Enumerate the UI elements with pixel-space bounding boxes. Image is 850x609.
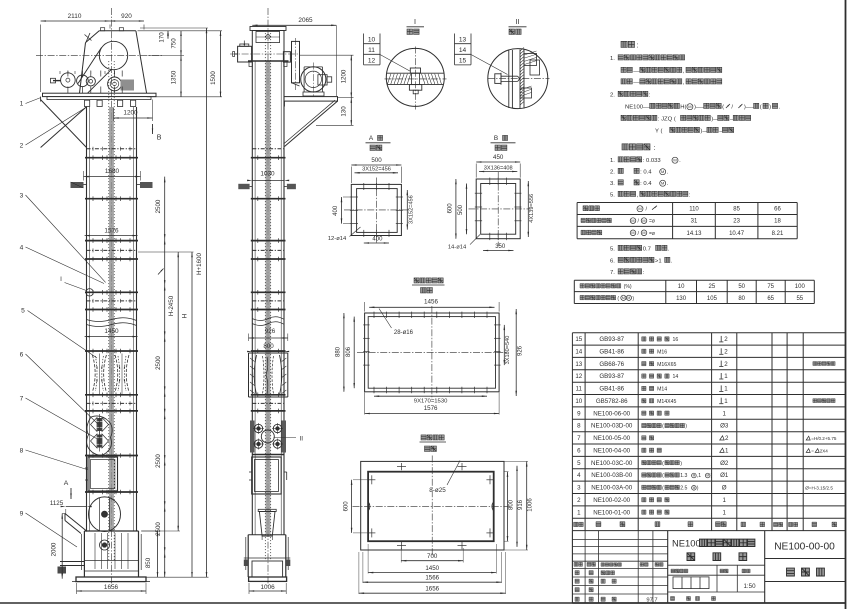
svg-text:105: 105 xyxy=(707,296,718,302)
svg-text:GB93-87: GB93-87 xyxy=(599,373,624,380)
svg-text:4: 4 xyxy=(20,245,24,252)
svg-text:1450: 1450 xyxy=(104,328,119,335)
svg-text:25: 25 xyxy=(709,284,716,290)
svg-text:GB68-76: GB68-76 xyxy=(599,361,624,368)
svg-text:2: 2 xyxy=(577,497,581,504)
svg-text:170: 170 xyxy=(158,32,165,43)
svg-text:(: ( xyxy=(662,424,664,430)
svg-text:66: 66 xyxy=(774,207,781,213)
svg-text:NE100-01-00: NE100-01-00 xyxy=(593,509,630,516)
svg-text:500: 500 xyxy=(371,157,382,164)
svg-text:700: 700 xyxy=(427,553,438,560)
svg-text:1: 1 xyxy=(724,373,728,380)
svg-text:): ) xyxy=(711,473,713,479)
svg-text:2500: 2500 xyxy=(155,356,162,370)
svg-text:2X4: 2X4 xyxy=(820,448,829,453)
svg-text:3X180=540: 3X180=540 xyxy=(505,336,511,365)
svg-text:10: 10 xyxy=(575,398,582,405)
svg-text:2: 2 xyxy=(725,435,729,442)
svg-text:): ) xyxy=(680,461,682,467)
svg-text:6: 6 xyxy=(20,352,24,359)
svg-text:9X170=1530: 9X170=1530 xyxy=(414,399,448,405)
svg-text:1350: 1350 xyxy=(171,70,178,84)
svg-text:=ø: =ø xyxy=(649,231,655,237)
svg-text:18: 18 xyxy=(774,219,781,225)
svg-text:2: 2 xyxy=(20,143,24,150)
svg-text:916: 916 xyxy=(518,499,524,510)
svg-text:I: I xyxy=(60,276,62,283)
svg-text:GB5782-86: GB5782-86 xyxy=(596,398,628,405)
svg-text:3X152=456: 3X152=456 xyxy=(409,195,415,224)
svg-text:500: 500 xyxy=(458,204,464,215)
svg-text:3X152=456: 3X152=456 xyxy=(362,167,391,173)
svg-text:M: M xyxy=(661,181,664,186)
svg-text:11: 11 xyxy=(576,386,583,393)
svg-text:M: M xyxy=(622,296,625,300)
svg-text:NE100-04-00: NE100-04-00 xyxy=(593,447,630,454)
svg-text:(: ( xyxy=(662,486,664,492)
svg-text:2.5: 2.5 xyxy=(680,486,687,492)
svg-text:1500: 1500 xyxy=(210,71,217,85)
svg-text:12: 12 xyxy=(368,58,376,65)
svg-text:1: 1 xyxy=(722,509,726,516)
svg-text:1450: 1450 xyxy=(425,565,439,572)
svg-text:M: M xyxy=(642,231,645,235)
svg-text:80: 80 xyxy=(738,296,745,302)
svg-text:M: M xyxy=(693,474,696,478)
svg-text:16: 16 xyxy=(673,337,679,343)
svg-text:Ø: Ø xyxy=(722,485,727,492)
svg-text:1656: 1656 xyxy=(425,586,439,593)
svg-text:II: II xyxy=(516,17,520,26)
svg-text:H-2450: H-2450 xyxy=(168,295,175,316)
svg-text:14: 14 xyxy=(575,349,582,356)
svg-text:926: 926 xyxy=(265,328,276,335)
svg-text:H+1600: H+1600 xyxy=(196,253,203,275)
svg-text:13: 13 xyxy=(459,37,467,44)
svg-text:13: 13 xyxy=(575,361,582,368)
svg-text:130: 130 xyxy=(676,296,687,302)
svg-text:1200: 1200 xyxy=(123,110,138,117)
svg-text:5.: 5. xyxy=(610,193,615,199)
svg-text:14: 14 xyxy=(459,47,467,54)
svg-text:): ) xyxy=(697,486,699,492)
svg-text:2.: 2. xyxy=(610,93,615,99)
svg-text:1: 1 xyxy=(722,497,726,504)
svg-text:75: 75 xyxy=(767,284,774,290)
svg-text:2500: 2500 xyxy=(155,522,162,536)
svg-text:5: 5 xyxy=(21,308,25,315)
svg-text:2500: 2500 xyxy=(155,199,162,213)
svg-text:H(: H( xyxy=(680,105,686,111)
svg-text:2065: 2065 xyxy=(298,17,313,24)
svg-text:M: M xyxy=(673,158,676,163)
svg-text:A: A xyxy=(369,135,374,142)
svg-text:1: 1 xyxy=(724,398,728,405)
svg-text:M16X65: M16X65 xyxy=(657,362,676,368)
svg-text:400: 400 xyxy=(333,205,339,216)
svg-text:1: 1 xyxy=(724,386,728,393)
svg-text:800: 800 xyxy=(508,499,514,510)
svg-text:1200: 1200 xyxy=(341,69,348,83)
svg-text:1006: 1006 xyxy=(528,498,534,512)
svg-text:14-ø14: 14-ø14 xyxy=(448,245,467,251)
svg-text:GB93-87: GB93-87 xyxy=(599,336,624,343)
svg-text:NE100-02-00: NE100-02-00 xyxy=(593,497,630,504)
svg-text:NE100-03B-00: NE100-03B-00 xyxy=(591,472,632,479)
svg-text:2: 2 xyxy=(724,361,728,368)
svg-text:1576: 1576 xyxy=(104,227,119,234)
svg-text:12-ø14: 12-ø14 xyxy=(328,236,347,242)
svg-text:II: II xyxy=(300,436,304,443)
svg-text:M: M xyxy=(688,104,691,109)
svg-text:M: M xyxy=(638,206,641,211)
svg-text:Ø3: Ø3 xyxy=(720,423,729,430)
svg-text:1576: 1576 xyxy=(424,405,438,412)
svg-text:850: 850 xyxy=(145,557,152,568)
svg-text:2000: 2000 xyxy=(51,542,58,556)
svg-text:1006: 1006 xyxy=(260,584,275,591)
svg-text:9: 9 xyxy=(577,410,581,417)
svg-text:B: B xyxy=(494,135,498,142)
svg-text:6: 6 xyxy=(577,447,581,454)
svg-text::: : xyxy=(637,43,639,50)
svg-text:800: 800 xyxy=(263,343,274,350)
svg-text:7.: 7. xyxy=(610,270,615,276)
svg-text:15: 15 xyxy=(575,336,582,343)
svg-text:65: 65 xyxy=(767,296,774,302)
svg-text:M: M xyxy=(627,296,630,300)
svg-text:(: ( xyxy=(662,461,664,467)
svg-text:NE100-05-00: NE100-05-00 xyxy=(593,435,630,442)
svg-text:): ) xyxy=(632,296,634,302)
svg-text:7: 7 xyxy=(20,396,24,403)
svg-text:2: 2 xyxy=(724,349,728,356)
svg-text:1: 1 xyxy=(722,410,726,417)
svg-text:3: 3 xyxy=(577,485,581,492)
svg-text:15: 15 xyxy=(459,58,467,65)
svg-text:8: 8 xyxy=(20,448,24,455)
svg-text:(: ( xyxy=(617,296,619,302)
svg-text:28-ø16: 28-ø16 xyxy=(394,330,414,336)
svg-text:M: M xyxy=(706,474,709,478)
svg-text:10: 10 xyxy=(368,37,376,44)
svg-text:(: ( xyxy=(662,473,664,479)
svg-text::: : xyxy=(654,145,656,152)
svg-text:=: = xyxy=(811,448,814,453)
svg-text:M14X45: M14X45 xyxy=(657,399,676,405)
svg-text:11: 11 xyxy=(368,47,375,54)
svg-text:GB41-86: GB41-86 xyxy=(599,386,624,393)
svg-text:7: 7 xyxy=(577,435,581,442)
svg-text:110: 110 xyxy=(689,207,699,213)
svg-text:M14: M14 xyxy=(657,387,667,393)
svg-text:1.3: 1.3 xyxy=(680,473,687,479)
svg-text:=H/0.2+5.75: =H/0.2+5.75 xyxy=(811,436,837,441)
svg-text:NE100-06-00: NE100-06-00 xyxy=(593,410,630,417)
svg-text:2: 2 xyxy=(724,336,728,343)
svg-text:130: 130 xyxy=(341,106,348,117)
svg-text:4X139=556: 4X139=556 xyxy=(529,194,535,223)
svg-text:1:50: 1:50 xyxy=(743,583,756,590)
svg-text:5: 5 xyxy=(577,460,581,467)
svg-text:NE100-03C-00: NE100-03C-00 xyxy=(591,460,633,467)
svg-text:2110: 2110 xyxy=(68,13,82,20)
svg-text:6.: 6. xyxy=(610,259,615,265)
svg-text:8: 8 xyxy=(577,423,581,430)
svg-text:): ) xyxy=(769,105,771,111)
svg-text:400: 400 xyxy=(372,237,383,243)
svg-text:I: I xyxy=(414,17,416,26)
svg-text:1: 1 xyxy=(577,509,581,516)
svg-text:14: 14 xyxy=(673,374,679,380)
svg-text:Y (: Y ( xyxy=(655,129,662,135)
svg-text:450: 450 xyxy=(493,154,504,161)
svg-text:Ø=H-3.15/2.5: Ø=H-3.15/2.5 xyxy=(805,486,833,491)
svg-text:8-ø25: 8-ø25 xyxy=(429,487,446,494)
svg-text:M: M xyxy=(661,169,664,174)
svg-text:M: M xyxy=(631,231,634,235)
svg-text:>1: >1 xyxy=(655,259,662,265)
svg-text:Ø1: Ø1 xyxy=(720,472,729,479)
svg-text:GB41-86: GB41-86 xyxy=(599,349,624,356)
svg-text:9: 9 xyxy=(20,511,24,518)
svg-text:2500: 2500 xyxy=(155,454,162,468)
svg-text:0.7: 0.7 xyxy=(643,247,651,253)
svg-text:NE100-00-00: NE100-00-00 xyxy=(774,542,835,553)
svg-text:10.47: 10.47 xyxy=(729,231,745,237)
svg-text:1566: 1566 xyxy=(425,575,439,582)
svg-text:NE100: NE100 xyxy=(672,538,701,549)
svg-text:100: 100 xyxy=(795,284,806,290)
svg-text:1: 1 xyxy=(725,447,729,454)
svg-text:M16: M16 xyxy=(657,350,667,356)
svg-text:(%): (%) xyxy=(624,284,632,290)
svg-text:1030: 1030 xyxy=(260,170,275,177)
svg-text:=ø: =ø xyxy=(649,219,655,225)
svg-text:8.21: 8.21 xyxy=(772,231,784,237)
svg-text:1656: 1656 xyxy=(104,584,119,591)
svg-text:: JZQ (: : JZQ ( xyxy=(658,117,676,123)
svg-text:: 0.4: : 0.4 xyxy=(640,181,652,187)
svg-text:85: 85 xyxy=(733,207,740,213)
svg-text:50: 50 xyxy=(738,284,745,290)
svg-text:350: 350 xyxy=(495,244,506,250)
svg-text:(: ( xyxy=(722,105,724,111)
svg-text:1456: 1456 xyxy=(424,299,439,306)
svg-text:31: 31 xyxy=(691,219,698,225)
svg-text:4: 4 xyxy=(577,472,581,479)
svg-text:1.: 1. xyxy=(610,158,615,164)
svg-text:,1: ,1 xyxy=(697,473,701,479)
svg-text:NE100-03D-00: NE100-03D-00 xyxy=(591,423,633,430)
svg-text:1680: 1680 xyxy=(105,168,120,175)
svg-text:3.: 3. xyxy=(610,181,615,187)
svg-text:A: A xyxy=(64,480,69,487)
svg-text:600: 600 xyxy=(448,203,454,214)
svg-text:M: M xyxy=(631,219,634,223)
svg-text:: 0.4: : 0.4 xyxy=(640,170,652,176)
svg-text:B: B xyxy=(157,135,162,142)
svg-text:1: 1 xyxy=(20,101,24,108)
svg-text:(: ( xyxy=(760,105,762,111)
svg-text:: 0.033: : 0.033 xyxy=(643,158,662,164)
svg-text:12: 12 xyxy=(575,373,582,380)
svg-text:H: H xyxy=(182,313,189,318)
svg-text:NE100-03A-00: NE100-03A-00 xyxy=(591,485,632,492)
svg-text:Ø2: Ø2 xyxy=(720,460,729,467)
svg-text:M: M xyxy=(693,486,696,490)
svg-text:600: 600 xyxy=(343,501,349,512)
svg-text:3X136=408: 3X136=408 xyxy=(484,165,513,171)
svg-text:2.: 2. xyxy=(610,170,615,176)
svg-text:920: 920 xyxy=(121,13,132,20)
svg-text:926: 926 xyxy=(517,345,523,356)
svg-text:10: 10 xyxy=(678,284,685,290)
svg-text:1.: 1. xyxy=(610,56,615,62)
svg-text:880: 880 xyxy=(336,346,342,357)
svg-text:5.: 5. xyxy=(610,247,615,253)
svg-text:14.13: 14.13 xyxy=(686,231,702,237)
svg-text:55: 55 xyxy=(796,296,803,302)
svg-text:3: 3 xyxy=(20,193,24,200)
svg-text:750: 750 xyxy=(171,38,178,49)
svg-text:23: 23 xyxy=(733,219,740,225)
svg-text:): ) xyxy=(685,424,687,430)
svg-text:M: M xyxy=(642,219,645,223)
svg-text:806: 806 xyxy=(346,346,352,357)
